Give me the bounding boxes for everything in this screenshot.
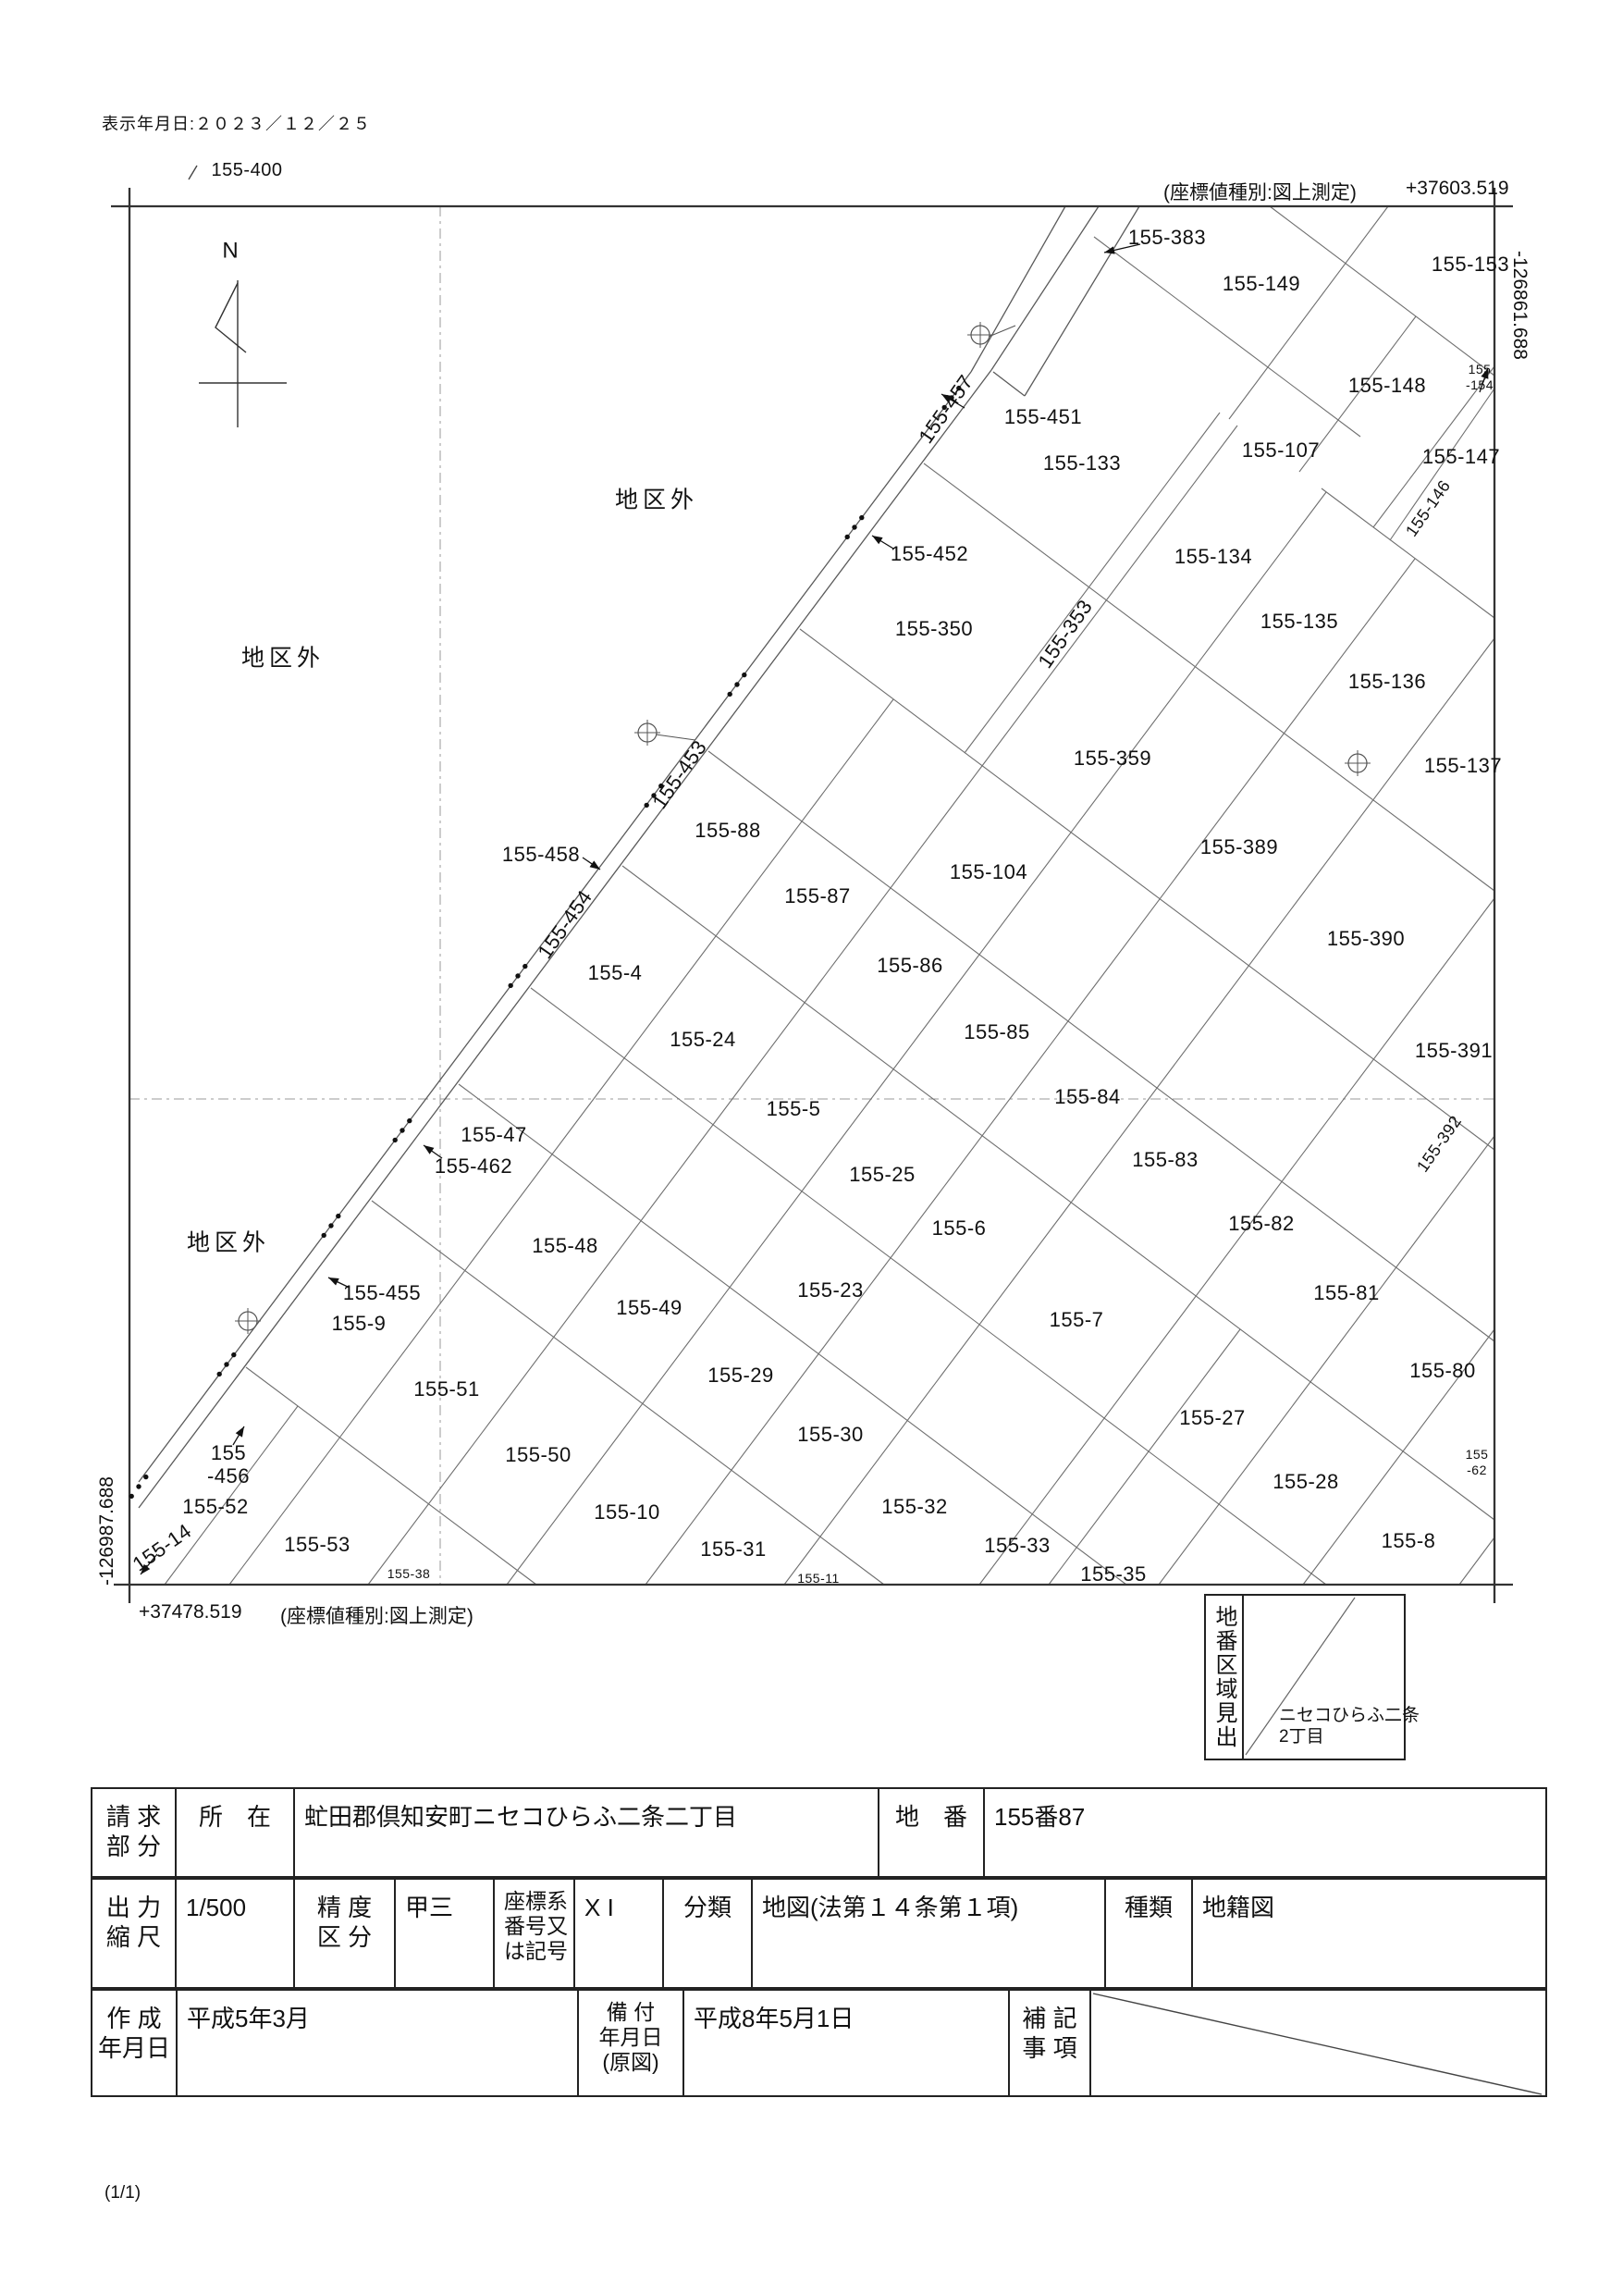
parcel-label: 155-391 [1415,1039,1493,1062]
cell-text: 縮 尺 [106,1922,161,1952]
cell-text: 地籍図 [1202,1893,1274,1922]
no-entry-diagonal [1091,1991,1545,2095]
parcel-label: 155-23 [797,1278,864,1302]
cell-shukushaku-label: 出 力縮 尺 [92,1880,177,1987]
parcel-label: 155-85 [964,1020,1030,1043]
parcel-label: 155-458 [502,843,580,866]
cell-chiban-label: 地 番 [879,1789,985,1876]
parcel-label: 155-4 [588,961,643,984]
cell-chiban-value: 155番87 [985,1789,1545,1876]
cell-seido-label: 精 度区 分 [295,1880,396,1987]
cell-hoki-empty [1091,1991,1545,2095]
cell-shurui-label: 種類 [1106,1880,1193,1987]
cell-shozai-label: 所 在 [177,1789,295,1876]
coord-type-top: (座標値種別:図上測定) [1163,178,1357,205]
parcel-label: 155-8 [1382,1529,1436,1552]
parcel-label: 155-88 [695,819,761,842]
cell-text: 虻田郡倶知安町ニセコひらふ二条二丁目 [304,1802,737,1832]
coord-y-left: -126987.688 [96,1476,118,1586]
parcel-label: 155-49 [616,1296,682,1319]
parcel-label: 155-47 [461,1123,527,1146]
parcel-label: 155-5 [767,1097,821,1120]
cell-text: 1/500 [186,1893,246,1922]
cell-hoki-label: 補 記事 項 [1010,1991,1091,2095]
parcel-label: 155-147 [1422,445,1500,468]
parcel-label: 155-7 [1050,1308,1104,1331]
parcel-label: 155-38 [387,1566,431,1581]
parcel-label: 155-148 [1348,374,1426,397]
cell-text: 備 付 [607,2000,655,2025]
parcel-label: 155-350 [895,617,973,640]
cell-sonae-value: 平成8年5月1日 [684,1991,1010,2095]
parcel-label: 155-359 [1074,747,1151,770]
parcel-label: 155-136 [1348,670,1426,693]
cell-text: 請 求 [106,1802,161,1832]
parcel-label: 155-53 [284,1533,350,1556]
cell-sakusei-value: 平成5年3月 [178,1991,579,2095]
cell-text: 作 成 [106,2004,161,2033]
parcel-label: 155-153 [1432,253,1509,276]
cell-text: 座標系 [504,1889,568,1914]
cell-shukushaku-value: 1/500 [177,1880,295,1987]
cell-sonae-label: 備 付年月日(原図) [579,1991,684,2095]
cell-text: 区 分 [317,1922,372,1952]
table1: 請 求部 分所 在虻田郡倶知安町ニセコひらふ二条二丁目地 番155番87 [91,1787,1547,1878]
parcel-label: 155-400 [212,160,283,180]
cell-bunrui-label: 分類 [664,1880,753,1987]
parcel-area-name: ニセコひらふ二条 2丁目 [1279,1705,1420,1747]
parcel-label: 155-455 [343,1281,421,1304]
parcel-label: 155-10 [594,1500,660,1524]
cell-text: 155番87 [994,1802,1085,1832]
cell-text: 種類 [1125,1893,1173,1922]
parcel-label: 155-389 [1200,835,1278,858]
parcel-label: 155-134 [1174,545,1252,568]
parcel-label: 155-29 [707,1364,774,1387]
coord-x-bottom-left: +37478.519 [139,1601,242,1623]
parcel-label: 155-133 [1043,451,1121,475]
parcel-label: 155-135 [1260,610,1338,633]
parcel-label: 155-24 [670,1028,736,1051]
parcel-area-index-title: 地番区域見出 [1206,1596,1244,1759]
parcel-label: 155-11 [797,1571,840,1586]
cell-text: 分類 [683,1893,732,1922]
parcel-label: 155-82 [1228,1212,1295,1235]
outside-district-label: 地区外 [615,488,698,513]
cell-bunrui-value: 地図(法第１４条第１項) [753,1880,1106,1987]
cell-text: 平成5年3月 [187,2004,310,2033]
parcel-area-index-box: 地番区域見出 ニセコひらふ二条 2丁目 [1204,1594,1406,1760]
parcel-label: 155-452 [891,542,968,565]
page-number: (1/1) [105,2183,141,2203]
parcel-label: 155-107 [1242,438,1320,462]
outside-district-label: 地区外 [241,646,325,672]
table2: 出 力縮 尺1/500精 度区 分甲三座標系番号又は記号X I分類地図(法第１４… [91,1878,1547,1989]
parcel-label: 155-25 [849,1163,916,1186]
parcel-label: 155-28 [1273,1470,1339,1493]
cell-zahyokei-value: X I [575,1880,664,1987]
parcel-label: 155-14 [129,1519,196,1575]
parcel-label: 155-6 [932,1216,987,1240]
coord-y-right: -126861.688 [1508,251,1531,360]
parcel-label: 155-154 [1466,362,1494,392]
display-date: 表示年月日:２０２３／１２／２５ [102,111,371,135]
parcel-area-index-body: ニセコひらふ二条 2丁目 [1244,1596,1404,1759]
parcel-label: 155-453 [647,735,711,812]
cell-text: 所 在 [199,1802,271,1832]
parcel-label: 155-9 [332,1312,387,1335]
cell-sakusei-label: 作 成年月日 [92,1991,178,2095]
parcel-label: 155-451 [1004,405,1082,428]
cell-text: は記号 [504,1939,568,1964]
cell-text: 精 度 [317,1893,372,1922]
cell-text: 補 記 [1022,2004,1076,2033]
parcel-label: 155-87 [784,884,851,907]
cell-text: 平成8年5月1日 [694,2004,854,2033]
table3: 作 成年月日平成5年3月備 付年月日(原図)平成8年5月1日補 記事 項 [91,1989,1547,2097]
parcel-label: 155-456 [207,1441,250,1487]
outside-district-label: 地区外 [187,1230,270,1256]
cell-text: 地 番 [895,1802,967,1832]
cell-text: 年月日 [599,2025,663,2050]
parcel-label: 155-50 [505,1443,572,1466]
cell-seikyu-bubun-label: 請 求部 分 [92,1789,177,1876]
parcel-label: 155-31 [700,1537,767,1561]
north-label: N [222,238,238,263]
parcel-label: 155-83 [1132,1148,1199,1171]
parcel-label: 155-51 [413,1377,480,1401]
cell-text: 番号又 [504,1914,568,1939]
cadastral-map-document: { "header": { "display_date": "表示年月日:２０２… [0,0,1623,2296]
parcel-label: 155-84 [1054,1085,1121,1108]
parcel-label: 155-454 [533,885,596,962]
parcel-label: 155-390 [1327,927,1405,950]
cell-text: (原図) [602,2050,658,2075]
coord-type-bottom: (座標値種別:図上測定) [280,1601,473,1629]
parcel-label: 155-457 [914,370,977,447]
parcel-label: 155-149 [1223,272,1300,295]
cell-shurui-value: 地籍図 [1193,1880,1545,1987]
parcel-label: 155-383 [1128,226,1206,249]
cell-text: 地図(法第１４条第１項) [762,1893,1018,1922]
parcel-label: 155-137 [1424,754,1502,777]
parcel-label: 155-353 [1033,595,1097,672]
parcel-label: 155-62 [1466,1447,1489,1477]
parcel-label: 155-86 [877,954,943,977]
cell-text: 年月日 [98,2033,170,2063]
parcel-label: 155-27 [1179,1406,1246,1429]
parcel-label: 155-33 [984,1534,1051,1557]
parcel-label: 155-32 [881,1495,948,1518]
cell-shozai-value: 虻田郡倶知安町ニセコひらふ二条二丁目 [295,1789,879,1876]
parcel-label: 155-81 [1313,1281,1380,1304]
cell-text: 部 分 [106,1832,161,1861]
parcel-label: 155-462 [435,1154,512,1178]
cell-seido-value: 甲三 [396,1880,495,1987]
coord-x-top-right: +37603.519 [1406,178,1509,200]
parcel-label: 155-48 [532,1234,598,1257]
cell-text: 甲三 [405,1893,453,1922]
parcel-label: 155-30 [797,1423,864,1446]
parcel-label: 155-104 [950,860,1027,883]
parcel-label: 155-80 [1409,1359,1476,1382]
cell-text: 事 項 [1022,2033,1076,2063]
parcel-label: 155-392 [1413,1112,1465,1175]
parcel-label: 155-52 [182,1495,249,1518]
parcel-label: 155-35 [1080,1562,1147,1586]
cell-text: X I [584,1893,614,1922]
cell-text: 出 力 [106,1893,161,1922]
cell-zahyokei-label: 座標系番号又は記号 [495,1880,575,1987]
